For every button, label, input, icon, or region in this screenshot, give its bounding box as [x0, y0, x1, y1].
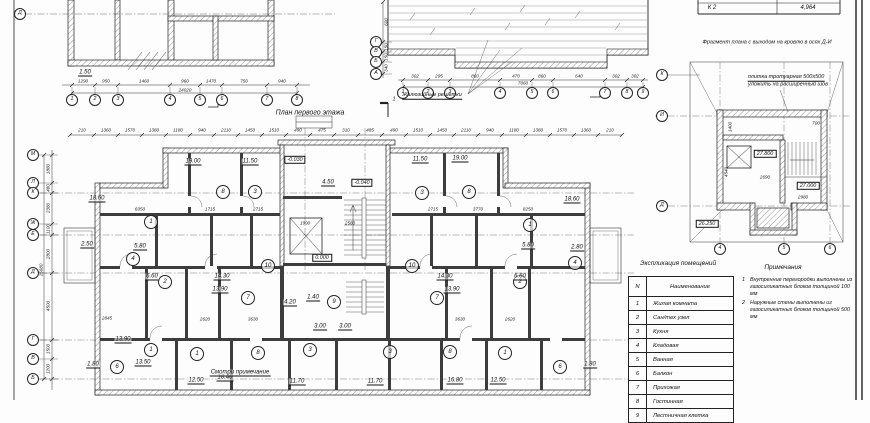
roof-plan-fragment [381, 0, 648, 97]
section-mark [380, 103, 388, 117]
explication-rows: 1 Жилая комната 2 Сан/тех узел 3 Кухня 4… [629, 297, 733, 422]
roof-exit-detail [655, 62, 850, 243]
corner-table-lines [698, 0, 840, 14]
drawing-linework [0, 0, 870, 400]
explication-title: Экспликация помещений [640, 261, 716, 268]
notes-list: 1 Внутренние перегородки выполнены из га… [742, 277, 854, 323]
corner-table-cell-value: 4,964 [800, 5, 815, 11]
drawing-sheet: МЛКЖЕДГВБД12345678123456789ГВБАКИД456 18… [0, 0, 870, 400]
note-item: 1 Внутренние перегородки выполнены из га… [742, 277, 854, 298]
explication-row: 1 Жилая комната [629, 297, 733, 311]
fragment-title: Фрагмент плана с выходом на кровлю в ося… [702, 40, 831, 46]
notes-title: Примечания [764, 265, 801, 272]
explication-row: 2 Сан/тех узел [629, 311, 733, 325]
explication-row: 5 Ванная [629, 353, 733, 367]
elevator-shaft [290, 218, 322, 254]
explication-table: N Наименование 1 Жилая комната 2 Сан/тех… [628, 276, 734, 423]
note-item: 2 Наружные стены выполнены из газосилика… [742, 300, 854, 321]
stairs [344, 198, 386, 314]
explication-col-n: N [629, 277, 647, 296]
explication-header: N Наименование [629, 277, 733, 297]
explication-row: 3 Кухня [629, 325, 733, 339]
explication-row: 7 Прихожая [629, 381, 733, 395]
explication-row: 6 Балкон [629, 367, 733, 381]
top-left-plan-fragment [25, 0, 335, 107]
main-plan [38, 116, 634, 395]
corner-table-cell-key: К 2 [708, 5, 717, 11]
explication-col-name: Наименование [647, 277, 733, 296]
plan-title: План первого этажа [276, 110, 345, 117]
explication-row: 9 Лестничная клетка [629, 409, 733, 422]
explication-row: 8 Гостинная [629, 395, 733, 409]
section-mark-label: 1 [392, 97, 395, 103]
explication-row: 4 Кладовая [629, 339, 733, 353]
tile-note-line2: уложить на расширенный шов [748, 82, 828, 88]
roof-grilles-label: Жалюзийные решетки [402, 93, 462, 100]
